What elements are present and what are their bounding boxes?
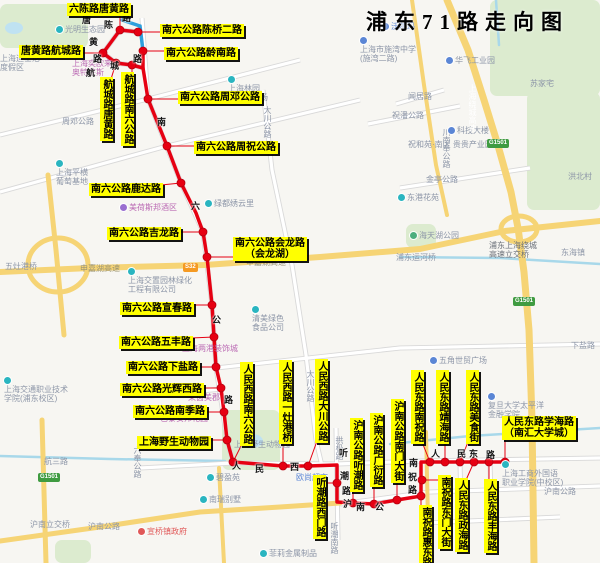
stop-dot xyxy=(470,458,478,466)
map-label: 下盐路 xyxy=(571,341,595,350)
road-name-char: 路 xyxy=(133,55,142,64)
road-name-char: 南 xyxy=(356,503,365,512)
stop-label: 南六公路光辉西路 xyxy=(120,383,204,396)
stop-label: 南六公路吉龙路 xyxy=(107,227,181,240)
map-label: 美荷斯邦酒区 xyxy=(120,203,177,212)
stop-label: 人民东路美食街 xyxy=(466,370,479,444)
map-label: 复旦大学太平洋金融学院 xyxy=(488,392,544,419)
road-name-char: 路 xyxy=(224,396,233,405)
green-area xyxy=(527,92,600,210)
road-name-char: 公 xyxy=(212,316,221,325)
stop-label: 人民东路丰海路 xyxy=(484,479,497,553)
poi-icon xyxy=(448,127,455,134)
poi-icon xyxy=(260,550,267,557)
road-name-char: 人 xyxy=(431,450,440,459)
road-name-char: 唐 xyxy=(82,16,91,25)
map-label: 海天湖公园 xyxy=(410,231,459,240)
stop-label: 唐黄路航城路 xyxy=(19,45,83,58)
map-label: 航三路 xyxy=(44,457,68,466)
highway-badge: S32 xyxy=(183,263,198,272)
map-label: 华飞工业园 xyxy=(446,56,495,65)
road-name-char: 黄 xyxy=(89,38,98,47)
map-label: 沪南公路 xyxy=(544,487,576,496)
road-name-char: 沪 xyxy=(343,500,352,509)
stop-label: 南六公路周邓公路 xyxy=(178,91,262,104)
map-label: 菲莉金属制品 xyxy=(260,549,317,558)
road-name-char: 城 xyxy=(110,62,119,71)
road-name-char: 南 xyxy=(157,118,166,127)
map-label: 洪北村 xyxy=(568,172,592,181)
stop-label: 上海野生动物园 xyxy=(137,436,211,449)
poi-icon xyxy=(205,200,212,207)
map-label: 金亭公路 xyxy=(426,175,458,184)
road-name-char: 公 xyxy=(375,503,384,512)
stop-dot xyxy=(163,142,171,150)
poi-icon xyxy=(502,461,509,468)
poi-icon xyxy=(446,57,453,64)
stop-label: 沪南公路听潮路 xyxy=(350,418,363,492)
stop-label: 南六公路宣春路 xyxy=(120,302,194,315)
stop-label: 南六公路陈桥二路 xyxy=(160,24,244,37)
stop-label: 人民西路大川公路 xyxy=(315,359,328,443)
road-name-char: 东 xyxy=(469,450,478,459)
highway-badge: G1501 xyxy=(38,473,60,482)
poi-icon xyxy=(200,496,207,503)
map-label: 周邓公路 xyxy=(62,117,94,126)
road-name-char: 民 xyxy=(255,465,264,474)
map-label: 听潮南路 xyxy=(330,522,339,554)
poi-icon xyxy=(488,393,495,400)
poi-icon xyxy=(56,26,63,33)
road-name-char: 听 xyxy=(339,449,348,458)
highway xyxy=(42,420,46,563)
poi-icon xyxy=(120,204,127,211)
stop-label: 人民西路一灶港桥 xyxy=(279,360,292,444)
map-label: 沪南公路 xyxy=(88,522,120,531)
stop-dot xyxy=(208,301,216,309)
road-name-char: 路 xyxy=(486,451,495,460)
road-name-char: 六 xyxy=(191,202,200,211)
map-label: 浦东上海绕城高速立交桥 xyxy=(489,241,537,259)
map-label: 申嘉湖高速 xyxy=(80,264,120,273)
map-label: 大川公路 xyxy=(306,370,315,402)
road-name-char: 路 xyxy=(93,55,102,64)
green-area xyxy=(55,540,91,563)
stop-dot xyxy=(144,95,152,103)
poi-icon xyxy=(4,377,11,384)
stop-dot xyxy=(393,496,401,504)
road-name-char: 民 xyxy=(457,450,466,459)
road-name-char: 航 xyxy=(86,69,95,78)
map-label: 上海交通职业技术学院(浦东校区) xyxy=(4,376,68,403)
stop-dot xyxy=(210,333,218,341)
stop-dot xyxy=(426,458,434,466)
map-label: 碧盈苑 xyxy=(207,473,240,482)
stop-label: 南祝路惠东路 xyxy=(419,505,432,563)
stop-dot xyxy=(217,384,225,392)
map-label: 苏家宅 xyxy=(530,79,554,88)
stop-dot xyxy=(417,492,425,500)
stop-dot xyxy=(220,408,228,416)
highway xyxy=(219,468,224,563)
stop-label: 南六公路下盐路 xyxy=(126,361,200,374)
poi-icon xyxy=(228,76,235,83)
road-name-char: 人 xyxy=(232,462,241,471)
page-title: 浦东71路走向图 xyxy=(366,6,569,36)
stop-dot xyxy=(223,436,231,444)
stop-dot xyxy=(418,476,426,484)
map-label: 南瑞别墅 xyxy=(200,495,241,504)
stop-label: 南六公路五丰路 xyxy=(119,336,193,349)
stop-dot xyxy=(116,26,124,34)
lake xyxy=(5,22,23,34)
stop-label: 南六公路会龙路（会龙湖） xyxy=(233,237,307,261)
road-name-char: 路 xyxy=(408,486,417,495)
stop-dot xyxy=(441,458,449,466)
highway-badge: G1501 xyxy=(487,139,509,148)
map-label: 祝和苑·南区 贵贵产业园 xyxy=(408,140,493,149)
stop-dot xyxy=(134,28,142,36)
map-label: 六奉公路 xyxy=(133,446,142,478)
poi-icon xyxy=(138,528,145,535)
map-label: 五角世贸广场 xyxy=(430,356,487,365)
map-label: 大川公路 xyxy=(263,106,272,138)
stop-label: 航城路南六公路 xyxy=(121,72,134,146)
road-name-char: 潮 xyxy=(340,472,349,481)
stop-label: 人民东路靖海路 xyxy=(436,370,449,444)
poi-icon xyxy=(360,37,367,44)
stop-dot xyxy=(456,458,464,466)
map-label: 五灶港桥 xyxy=(5,262,37,271)
stop-label: 人民东路学海路（南汇大学城） xyxy=(502,416,576,440)
road-name-char: 陈 xyxy=(104,21,113,30)
map-label: 绿都绣云里 xyxy=(205,199,254,208)
poi-icon xyxy=(56,160,63,167)
poi-icon xyxy=(207,474,214,481)
stop-dot xyxy=(203,253,211,261)
map-label: 祝潘公路 xyxy=(392,111,424,120)
poi-icon xyxy=(128,268,135,275)
poi-icon xyxy=(430,357,437,364)
map-label: 东海镇 xyxy=(561,248,585,257)
stop-label: 人民西路南六公路 xyxy=(240,362,253,446)
road-name-char: 祝 xyxy=(408,473,417,482)
map-label: 浦东运河桥 xyxy=(396,253,436,262)
map-label: 上海工商外国语职业学院(中校区) xyxy=(502,460,563,487)
stop-label: 沪南公路广衍路 xyxy=(370,413,383,487)
river xyxy=(0,456,225,461)
map-label: 光明生态园 xyxy=(56,25,105,34)
stop-dot xyxy=(177,179,185,187)
map-label: 上海绕城高速 xyxy=(468,84,477,132)
stop-dot xyxy=(304,462,312,470)
highway-badge: G1501 xyxy=(513,297,535,306)
map-label: 上海平横葡萄基地 xyxy=(56,159,88,186)
stop-label: 南六公路周祝公路 xyxy=(194,141,278,154)
stop-label: 南祝路东门大街 xyxy=(438,475,451,549)
map-label: 上海市施湾中学(施湾二路) xyxy=(360,36,416,63)
map-label: 沪南立交桥 xyxy=(30,520,70,529)
map-label: 清美绿色食品公司 xyxy=(252,305,284,332)
poi-icon xyxy=(252,306,259,313)
stop-dot xyxy=(212,363,220,371)
stop-label: 航城路唐黄路 xyxy=(100,77,113,141)
poi-icon xyxy=(398,194,405,201)
stop-label: 听潮路西门路 xyxy=(313,475,326,539)
map-label: 宣桥镇政府 xyxy=(138,527,187,536)
stop-label: 人民东路南祝路 xyxy=(411,370,424,444)
road-name-char: 西 xyxy=(290,463,299,472)
map-label: 东港花苑 xyxy=(398,193,439,202)
stop-label: 南六公路南季路 xyxy=(133,405,207,418)
stop-label: 六陈路唐黄路 xyxy=(67,3,131,16)
poi-icon xyxy=(410,232,417,239)
stop-label: 人民东路政海路 xyxy=(455,478,468,552)
stop-dot xyxy=(279,462,287,470)
map-label: 闻居路 xyxy=(408,92,432,101)
stop-label: 南六公路龄南路 xyxy=(164,47,238,60)
highway xyxy=(48,175,64,335)
stop-label: 沪南公路南门大街 xyxy=(391,399,404,483)
road-name-char: 南 xyxy=(409,459,418,468)
route-map-canvas[interactable]: 浦东71路走向图 六陈路唐黄路南六公路陈桥二路南六公路龄南路唐黄路航城路航城路唐… xyxy=(0,0,600,563)
stop-label: 南六公路鹿达路 xyxy=(89,183,163,196)
stop-dot xyxy=(199,228,207,236)
